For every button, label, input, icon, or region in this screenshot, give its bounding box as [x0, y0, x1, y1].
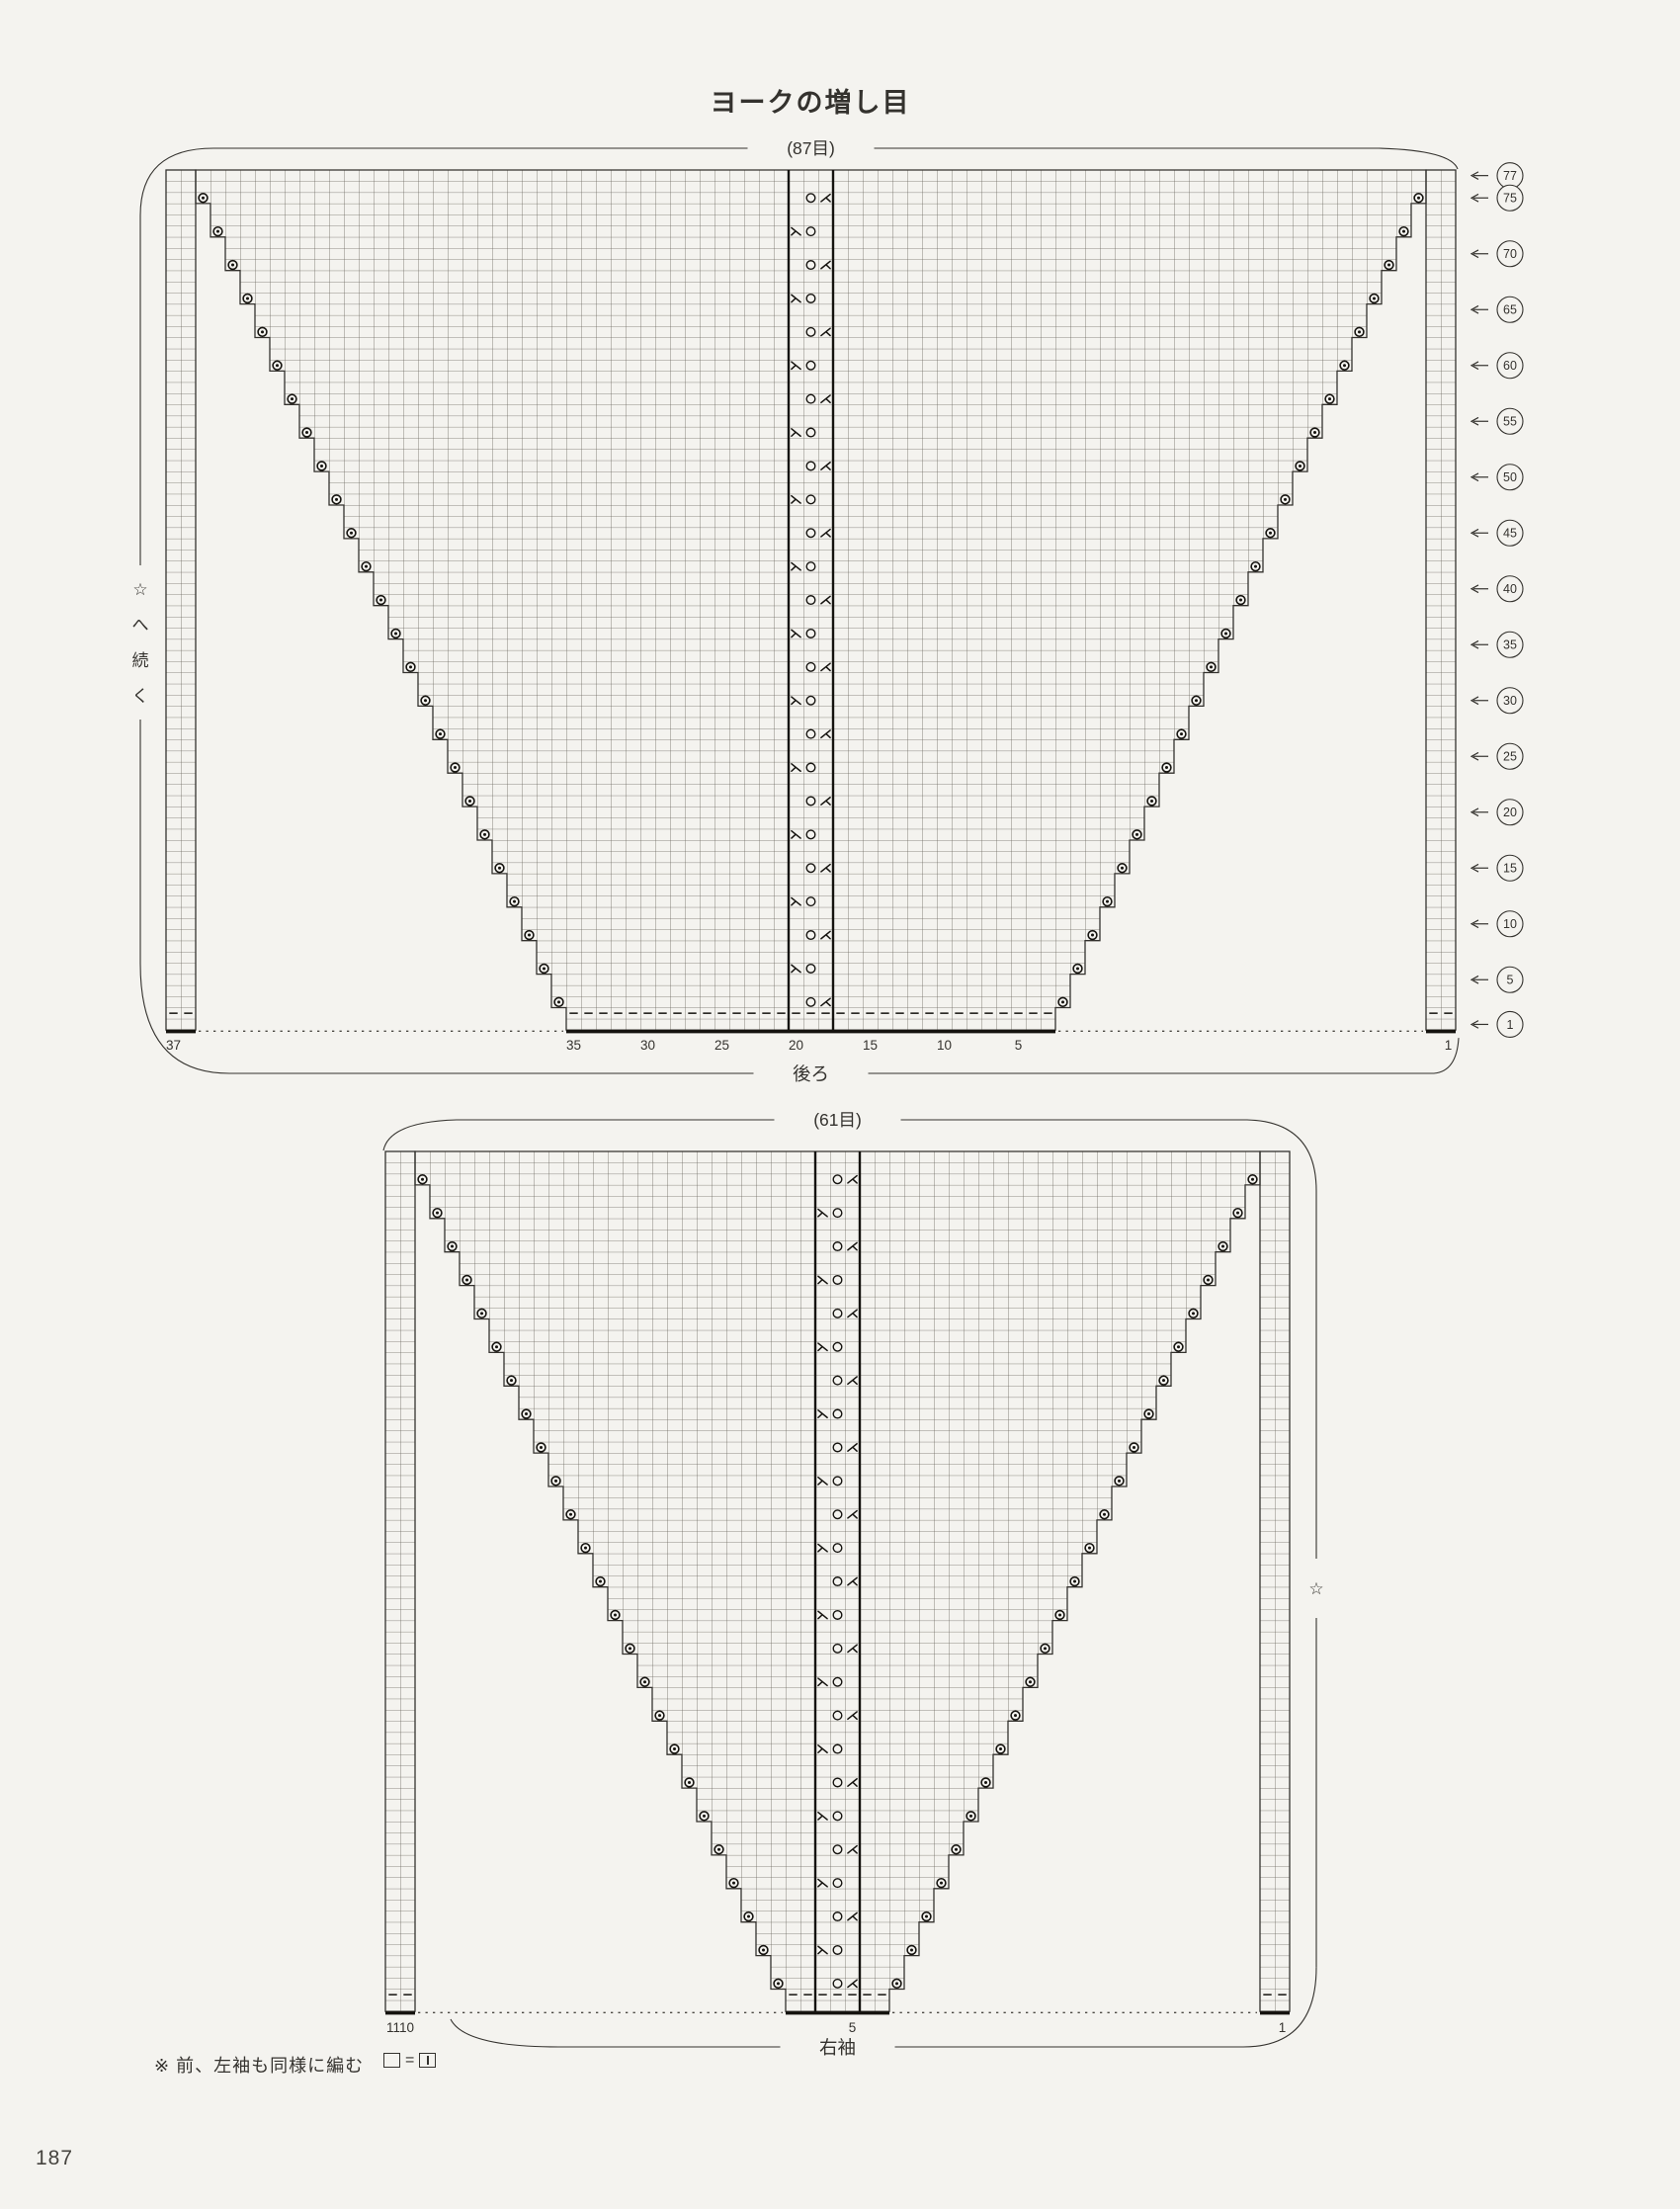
equals-sign: = [405, 2054, 414, 2067]
svg-text:☆: ☆ [132, 580, 147, 599]
scanned-pattern-page: 3735302520151051☆へ続く(87目)後ろ7775706560555… [0, 0, 1680, 2209]
svg-text:5: 5 [1507, 974, 1514, 987]
svg-text:70: 70 [1503, 247, 1517, 261]
svg-text:5: 5 [849, 2020, 857, 2035]
footnote-text: ※ 前、左袖も同様に編む [154, 2052, 364, 2078]
svg-text:25: 25 [714, 1038, 729, 1053]
svg-text:15: 15 [1503, 862, 1517, 876]
svg-text:35: 35 [1503, 638, 1517, 652]
svg-text:続: 続 [132, 651, 149, 670]
empty-square-icon [383, 2053, 400, 2068]
svg-text:く: く [132, 687, 149, 706]
svg-text:60: 60 [1503, 359, 1517, 373]
increase-triangle-region [415, 1151, 1260, 2011]
page-number: 187 [36, 2147, 73, 2170]
svg-text:1: 1 [1279, 2020, 1287, 2035]
svg-text:35: 35 [566, 1038, 581, 1053]
svg-text:後ろ: 後ろ [793, 1063, 829, 1084]
svg-text:15: 15 [863, 1038, 878, 1053]
svg-text:10: 10 [937, 1038, 952, 1053]
svg-text:(61目): (61目) [813, 1110, 862, 1130]
svg-text:75: 75 [1503, 192, 1517, 206]
svg-text:1: 1 [1507, 1018, 1514, 1032]
svg-text:30: 30 [1503, 694, 1517, 708]
svg-text:へ: へ [132, 616, 149, 635]
chart-back: 3735302520151051☆へ続く(87目)後ろ7775706560555… [132, 138, 1524, 1084]
svg-text:77: 77 [1503, 169, 1517, 183]
svg-text:20: 20 [789, 1038, 803, 1053]
edge-strip-right [1426, 170, 1456, 1030]
knit-stitch-icon [419, 2053, 436, 2068]
svg-text:☆: ☆ [1308, 1579, 1323, 1598]
knitting-charts-canvas: 3735302520151051☆へ続く(87目)後ろ7775706560555… [0, 0, 1680, 2209]
svg-text:55: 55 [1503, 415, 1517, 429]
page-title: ヨークの増し目 [632, 81, 988, 120]
svg-text:30: 30 [640, 1038, 655, 1053]
edge-strip-left [166, 170, 196, 1030]
svg-text:65: 65 [1503, 303, 1517, 317]
svg-text:20: 20 [1503, 806, 1517, 819]
stitch-key: = [383, 2053, 436, 2068]
svg-text:10: 10 [1503, 917, 1517, 931]
svg-text:(87目): (87目) [787, 138, 835, 158]
svg-text:40: 40 [1503, 582, 1517, 596]
svg-text:37: 37 [166, 1038, 181, 1053]
svg-text:1: 1 [1445, 1038, 1453, 1053]
svg-text:右袖: 右袖 [819, 2037, 856, 2058]
chart-right-sleeve: 111051☆(61目)右袖 [383, 1110, 1324, 2058]
edge-strip-right [1260, 1151, 1290, 2011]
svg-text:50: 50 [1503, 470, 1517, 484]
svg-text:25: 25 [1503, 750, 1517, 764]
svg-text:45: 45 [1503, 527, 1517, 541]
svg-text:5: 5 [1015, 1038, 1023, 1053]
row-number-markers: 77757065605550454035302520151051 [1471, 163, 1523, 1038]
edge-strip-left [385, 1151, 415, 2011]
svg-text:1110: 1110 [386, 2020, 414, 2035]
